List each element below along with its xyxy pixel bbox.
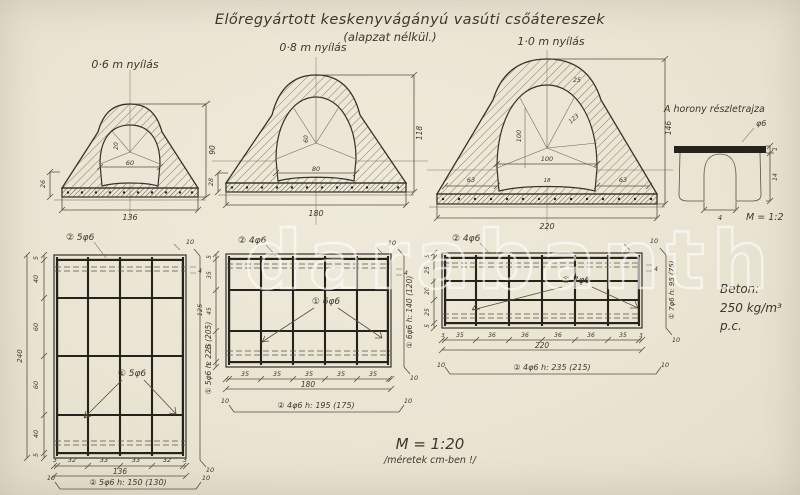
dim-label: 35 <box>456 332 464 339</box>
dim-label: 36 <box>488 332 496 339</box>
plan-bottom-label: ② 4φ6 h: 195 (175) <box>277 401 354 410</box>
hook-length: 10 <box>186 238 194 246</box>
dim-inner-width: 60 <box>126 159 134 167</box>
dim-height: 118 <box>415 126 424 141</box>
dim-total-width: 136 <box>113 467 128 476</box>
dim-side: 28 <box>207 178 215 186</box>
drawing-scale-units: /méretek cm-ben !/ <box>360 455 500 466</box>
material-note-line2: 250 kg/m³ p.c. <box>720 299 800 336</box>
section-08-label: 0·8 m nyílás <box>253 41 373 54</box>
dim-haunch-left: 63 <box>467 176 475 184</box>
rebar-plan-06: ② 5φ6 ① 5φ6 5 40 60 60 40 5 240 3 32 33 … <box>14 228 220 494</box>
drawing-title: Előregyártott keskenyvágányú vasúti csőá… <box>180 12 640 28</box>
dim-width: 180 <box>308 209 323 218</box>
dim-label: 4 <box>654 266 658 273</box>
dim-label: 3 <box>53 456 57 464</box>
material-note: Beton: 250 kg/m³ p.c. <box>720 280 800 336</box>
plan-right-label: ① 7φ6 h: 95 (75) <box>668 260 676 319</box>
dim-label: 5 <box>424 254 431 258</box>
section-10-cross-section: 146 220 63 63 100 100 123 25 18 <box>425 48 675 233</box>
rebar-dia-label: φ6 <box>756 119 766 128</box>
dim-label: 35 <box>369 370 377 378</box>
dim-wall-top: 25 <box>573 77 581 84</box>
dim-total-width: 220 <box>535 341 550 350</box>
section-10-label: 1·0 m nyílás <box>491 35 611 48</box>
hook-length: 10 <box>388 239 396 247</box>
dim-label: 32 <box>68 456 76 464</box>
section-06-cross-section: 90 136 26 60 20 <box>38 68 228 223</box>
dim-label: 36 <box>587 332 595 339</box>
dim-label: 3 <box>441 333 445 339</box>
detail-scale: M = 1:2 <box>746 212 784 223</box>
plan-bottom-label: ② 5φ6 h: 150 (130) <box>89 478 166 487</box>
dim-label: 33 <box>132 456 140 464</box>
dim-small: 18 <box>544 178 551 184</box>
hook-length: 10 <box>202 474 210 482</box>
dim-haunch-right: 63 <box>619 176 627 184</box>
hook-length: 10 <box>47 474 55 482</box>
dim-label: 35 <box>206 343 213 351</box>
hook-length: 10 <box>206 466 214 474</box>
dim-side: 26 <box>39 180 47 188</box>
dim-label: 5 <box>32 453 40 457</box>
plan-mid-label: ① 6φ6 <box>312 297 341 307</box>
plan-top-label: ② 4φ6 <box>452 234 481 244</box>
dim-label: 5 <box>32 256 40 260</box>
dim-inner-width: 80 <box>312 165 320 173</box>
dim-label: 5 <box>206 362 213 366</box>
dim-right-top: 1 <box>772 147 779 151</box>
dim-label: 40 <box>32 275 40 283</box>
dim-total-width: 180 <box>301 380 316 389</box>
dim-label: 40 <box>32 430 40 438</box>
hook-length: 10 <box>437 361 445 369</box>
dim-label: 36 <box>521 332 529 339</box>
dim-label: 35 <box>305 370 313 378</box>
dim-label: 20 <box>424 287 431 295</box>
rebar-plan-10: ② 4φ6 ① 7φ6 5 25 20 25 5 3 35 36 36 36 3… <box>424 230 680 390</box>
dim-label: 35 <box>619 332 627 339</box>
detail-geometry <box>674 128 774 213</box>
hook-length: 10 <box>672 336 680 344</box>
plan-mid-label: ① 5φ6 <box>118 369 147 379</box>
dim-label: 25 <box>424 266 431 274</box>
dim-label: 35 <box>273 370 281 378</box>
hook-length: 10 <box>661 361 669 369</box>
dim-label: 35 <box>241 370 249 378</box>
plan-bottom-label: ② 4φ6 h: 235 (215) <box>513 363 590 372</box>
plan-06-geometry <box>24 242 206 489</box>
section-08-geometry <box>212 57 428 225</box>
dim-total-height: 125 <box>196 304 204 316</box>
plan-10-geometry <box>431 243 672 374</box>
dim-label: 60 <box>32 323 40 331</box>
section-06-geometry <box>47 70 210 218</box>
dim-right-bottom: 14 <box>772 173 779 181</box>
material-note-line1: Beton: <box>720 280 800 299</box>
hook-length: 10 <box>650 237 658 245</box>
dim-label: 45 <box>206 307 213 315</box>
dim-total-height: 240 <box>16 349 24 363</box>
plan-mid-label: ① 7φ6 <box>562 276 591 286</box>
rebar-plan-08: ② 4φ6 ① 6φ6 5 35 45 35 5 125 35 35 35 35… <box>196 232 429 422</box>
dim-label: 3 <box>183 456 187 464</box>
dim-inner-width: 100 <box>541 155 553 163</box>
section-08-cross-section: 118 180 28 80 60 <box>210 55 430 227</box>
groove-detail: A horony részletrajza φ6 4 1 14 M = 1:2 <box>658 98 800 228</box>
hook-length: 10 <box>410 374 418 382</box>
plan-top-label: ② 5φ6 <box>66 233 95 243</box>
dim-label: 25 <box>424 308 431 316</box>
dim-label: 5 <box>424 324 431 328</box>
dim-label: 3 <box>639 333 643 339</box>
dim-inner-height: 100 <box>515 130 523 142</box>
scanned-technical-drawing: Előregyártott keskenyvágányú vasúti csőá… <box>0 0 800 495</box>
dim-label: 36 <box>554 332 562 339</box>
detail-title: A horony részletrajza <box>663 104 765 115</box>
hook-length: 10 <box>221 397 229 405</box>
plan-right-label: ① 6φ6 h: 140 (120) <box>405 276 414 349</box>
dim-width: 136 <box>122 213 137 222</box>
dim-label: 60 <box>32 381 40 389</box>
dim-inner-height: 20 <box>113 142 120 150</box>
dim-opening: 4 <box>718 214 722 222</box>
dim-label: 5 <box>206 255 213 259</box>
section-10-geometry <box>427 50 673 231</box>
hook-length: 10 <box>404 397 412 405</box>
dim-label: 35 <box>337 370 345 378</box>
dim-label: 32 <box>163 456 171 464</box>
plan-top-label: ② 4φ6 <box>238 236 267 246</box>
drawing-scale: M = 1:20 <box>370 435 490 453</box>
dim-label: 35 <box>206 271 213 279</box>
dim-inner-height: 60 <box>303 135 310 143</box>
dim-label: 33 <box>100 456 108 464</box>
